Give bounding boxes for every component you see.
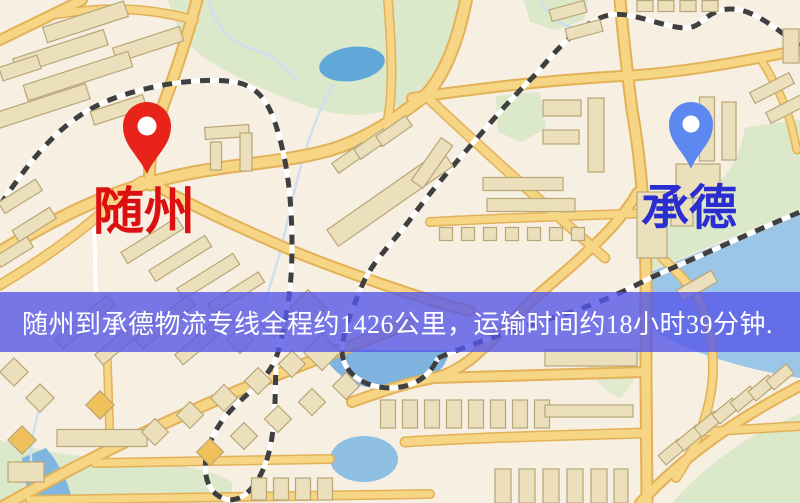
route-info-banner: 随州到承德物流专线全程约1426公里，运输时间约18小时39分钟. (0, 292, 800, 352)
origin-label: 随州 (93, 184, 195, 241)
destination-pin-hole (683, 116, 700, 133)
destination-label: 承德 (641, 182, 737, 235)
route-info-text: 随州到承德物流专线全程约1426公里，运输时间约18小时39分钟. (22, 304, 773, 341)
pond (330, 436, 398, 482)
map-canvas: 随州 承德 随州到承德物流专线全程约1426公里，运输时间约18小时39分钟. (0, 0, 800, 503)
origin-pin-hole (138, 117, 157, 136)
